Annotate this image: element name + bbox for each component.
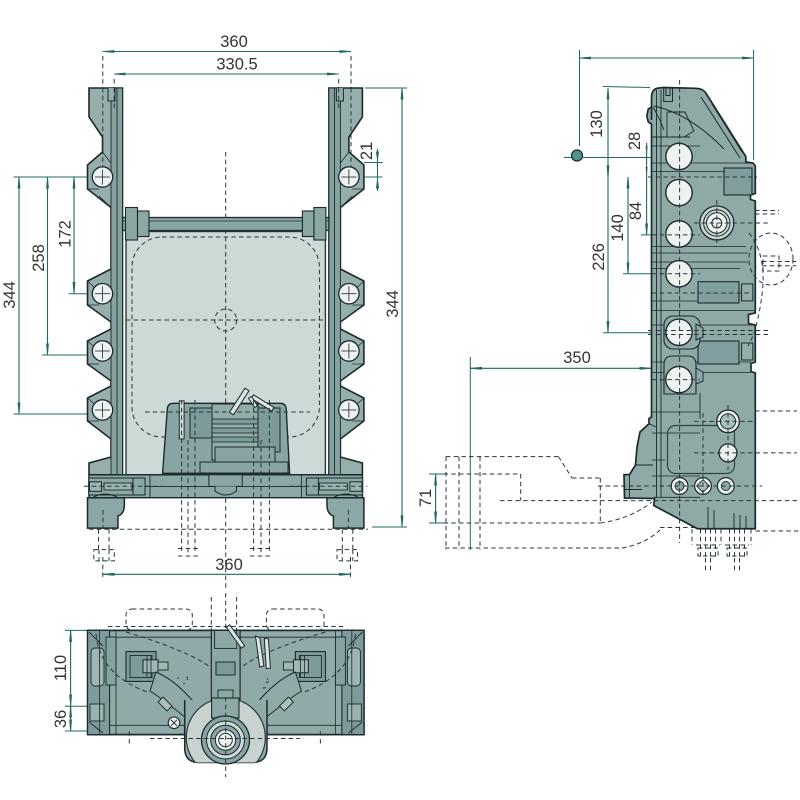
svg-text:21: 21 xyxy=(358,142,376,160)
svg-text:71: 71 xyxy=(417,489,435,507)
svg-text:84: 84 xyxy=(627,202,645,220)
svg-text:36: 36 xyxy=(52,710,70,728)
svg-text:330.5: 330.5 xyxy=(216,56,257,74)
svg-text:258: 258 xyxy=(30,244,48,272)
svg-text:344: 344 xyxy=(384,290,402,318)
svg-text:350: 350 xyxy=(563,349,591,367)
svg-text:140: 140 xyxy=(609,214,627,242)
svg-text:130: 130 xyxy=(588,110,606,138)
svg-text:172: 172 xyxy=(57,220,75,248)
svg-text:226: 226 xyxy=(590,243,608,271)
svg-text:28: 28 xyxy=(626,132,644,150)
svg-text:110: 110 xyxy=(52,655,70,681)
svg-text:360: 360 xyxy=(215,556,243,574)
svg-text:360: 360 xyxy=(220,33,248,51)
svg-text:344: 344 xyxy=(1,281,19,309)
